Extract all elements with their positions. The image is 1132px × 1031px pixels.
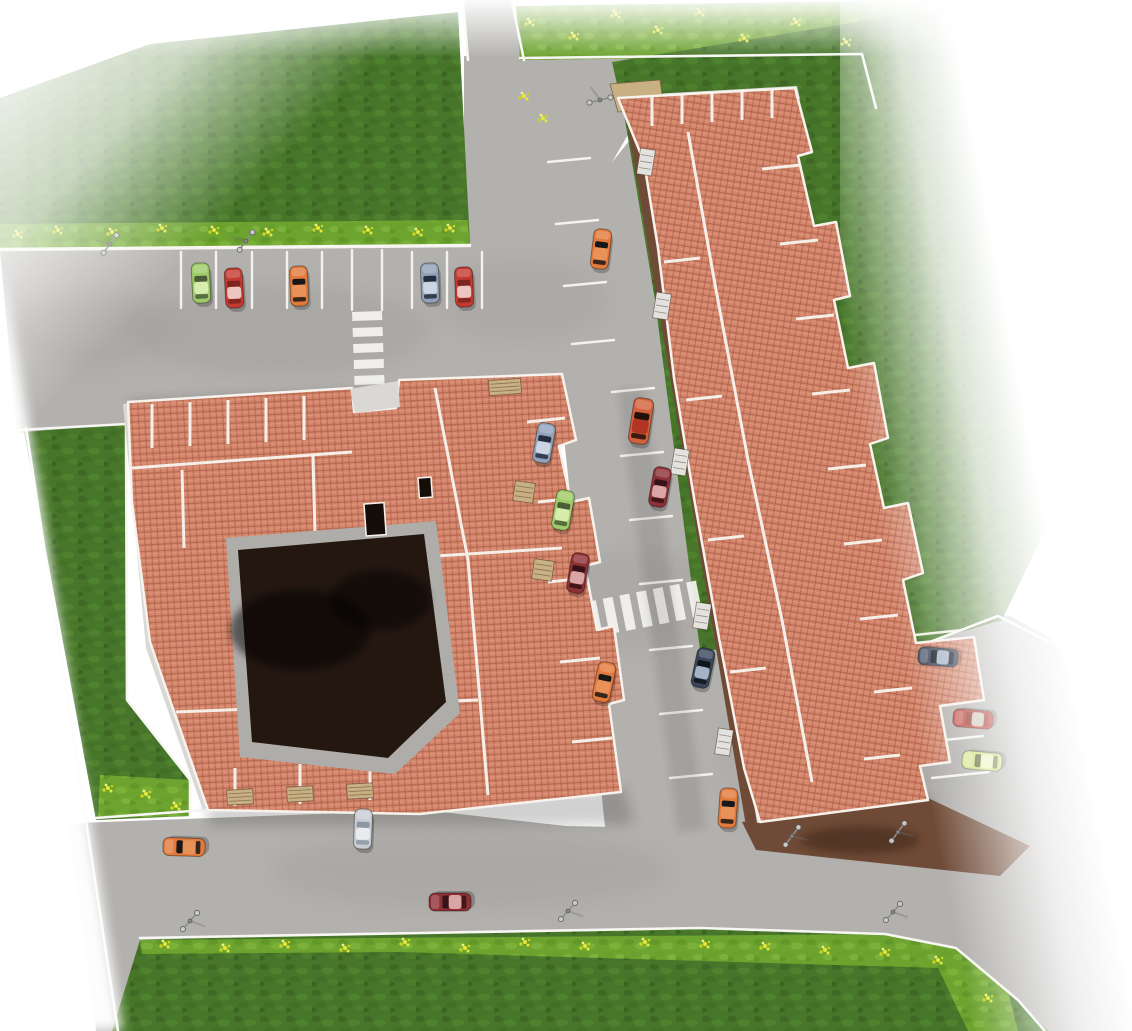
entry-canopy [287,786,314,802]
entry-canopy [532,559,555,582]
roof-hatch [418,477,432,498]
car-orange [163,835,210,857]
entry-canopy [227,789,254,805]
site-plan-rendering [0,0,1132,1031]
entry-canopy [513,481,536,504]
roof-hatch [364,503,386,536]
car-darkred [429,891,475,911]
entry-canopy [347,783,374,799]
car-silver [353,809,375,854]
site-plan-page [0,0,1132,1031]
car-orange [717,787,740,832]
entry-canopy [489,378,522,395]
car-red [454,267,476,312]
